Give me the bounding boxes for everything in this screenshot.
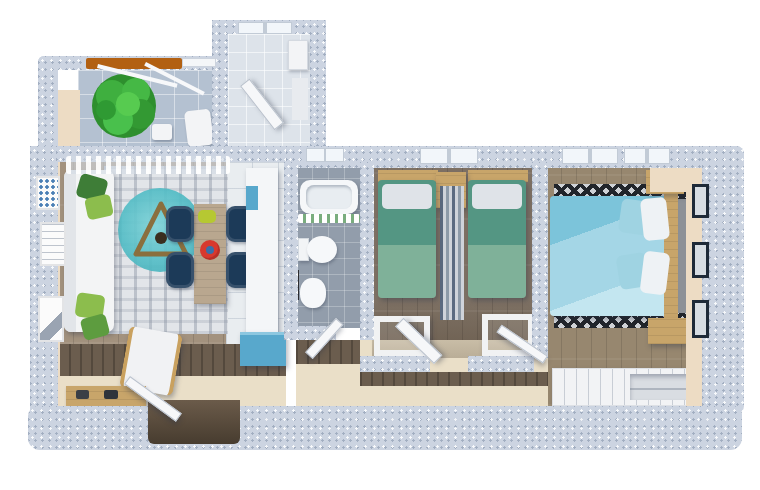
wall-frame (40, 222, 66, 266)
south-outer-wall (28, 406, 742, 450)
bed-pillow (382, 184, 432, 209)
balcony-rail-white (182, 58, 216, 67)
wall-frame (38, 296, 64, 342)
white-pillow (640, 197, 670, 241)
master-top-wall-face (650, 166, 690, 192)
counter-blue-inset (246, 186, 258, 210)
master-wall-frame (692, 300, 709, 338)
bathroom-right-wall (360, 162, 374, 340)
north-outer-wall (286, 146, 744, 168)
blue-cabinet (240, 332, 286, 366)
master-window (624, 148, 670, 164)
striped-runner (440, 186, 464, 320)
hallway-wall-band-right (360, 372, 548, 386)
floor-plan-render (0, 0, 760, 490)
bathroom-window (306, 148, 344, 162)
white-pillow (640, 251, 671, 296)
utility-window (238, 22, 292, 34)
outdoor-chair (184, 109, 214, 148)
bed-pillow (472, 184, 522, 209)
toilet-bowl (307, 236, 337, 263)
master-wall-frame (692, 184, 709, 218)
bathtub-basin (306, 185, 352, 209)
bedrooms-divider-wall (532, 162, 548, 358)
master-window (562, 148, 618, 164)
shoes (104, 390, 118, 399)
shower-curtain (298, 214, 360, 223)
bidet (300, 278, 326, 308)
dining-chair (166, 252, 194, 288)
green-dish (198, 210, 216, 223)
utility-right-wall (310, 20, 326, 162)
living-window-curtain (66, 156, 230, 174)
utility-shelf (292, 78, 308, 120)
twin-bottom-wall-right (468, 356, 534, 372)
master-nightstand-bottom (648, 318, 686, 344)
dining-chair (166, 206, 194, 242)
bathroom-left-wall (284, 162, 298, 340)
twin-bottom-wall-left (360, 356, 430, 372)
master-wall-frame (692, 242, 709, 278)
balcony-table (152, 124, 172, 140)
washer-unit (288, 40, 308, 70)
utility-left-wall (212, 20, 228, 162)
twin-bedroom-window (420, 148, 478, 164)
plate-item (206, 246, 214, 254)
shoes (76, 390, 89, 399)
wall-frame (36, 176, 60, 210)
